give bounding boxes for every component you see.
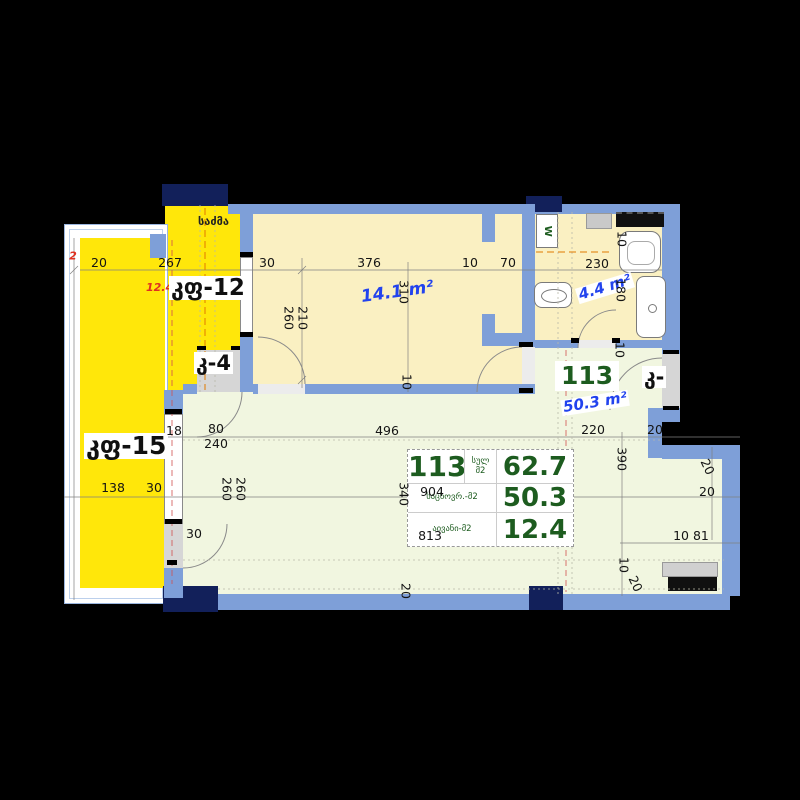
wall-tick <box>231 346 240 350</box>
door-bath-opening <box>578 340 616 348</box>
wall-right-mid <box>648 420 662 458</box>
floor-plan: W <box>0 0 800 800</box>
window-left-main <box>164 414 183 524</box>
column-top-left <box>162 184 228 206</box>
wall-top <box>228 204 680 214</box>
bathtub-drain <box>648 304 657 313</box>
wall-bedroom-bottom <box>305 384 522 394</box>
table-row-total: 113 სულ მ2 62.7 <box>408 450 573 483</box>
wall-balcony-corner <box>150 234 166 258</box>
wall-left-main-b <box>164 568 183 598</box>
wall-tick <box>165 519 182 524</box>
wall-tick <box>663 406 679 410</box>
wall-strip-right-b <box>240 337 253 392</box>
wall-seg-a <box>183 384 197 394</box>
wall-niche-stub-b <box>482 314 495 335</box>
bathtub <box>636 276 666 338</box>
balcony-strip-label: კფ-12 <box>169 276 247 300</box>
toilet <box>619 231 661 273</box>
table-unit-number: 113 <box>408 453 464 481</box>
wall-bath-bottom-b <box>616 340 662 348</box>
shaft <box>586 213 612 229</box>
table-balcony-label: აივანი-მ2 <box>408 525 496 535</box>
table-total-value: 62.7 <box>496 450 573 483</box>
toilet-bowl <box>627 241 655 265</box>
washing-machine: W <box>536 214 558 248</box>
table-row-living: საცხოვრ.-მ2 50.3 <box>408 483 573 512</box>
wall-divider <box>522 204 535 347</box>
wall-tick <box>197 346 206 350</box>
table-living-value: 50.3 <box>496 484 573 512</box>
strip-top-label: საძმა <box>198 216 229 228</box>
wall-tick <box>165 409 182 414</box>
column-bottom-mid <box>529 586 563 610</box>
door-bedroom-left-opening <box>258 384 305 394</box>
door-right-label: კ- <box>642 366 666 388</box>
wall-niche-stub-a <box>482 214 495 242</box>
table-total-label: სულ მ2 <box>464 450 496 483</box>
door-k4-label: კ-4 <box>194 352 233 374</box>
sink-bowl <box>541 289 567 303</box>
table-balcony-value: 12.4 <box>496 513 573 546</box>
table-total-label-line2: მ2 <box>472 467 490 477</box>
table-row-balcony: აივანი-მ2 12.4 <box>408 512 573 546</box>
hall-unit-number: 113 <box>555 361 619 391</box>
wall-tick <box>519 342 533 347</box>
wall-tick <box>167 560 177 565</box>
wall-bottom <box>218 594 730 610</box>
area-summary-table: 113 სულ მ2 62.7 საცხოვრ.-მ2 50.3 აივანი-… <box>407 449 574 547</box>
wall-tick <box>519 388 533 393</box>
washing-machine-label: W <box>541 226 552 237</box>
wall-tick <box>612 338 620 343</box>
wall-tick <box>240 332 253 337</box>
wall-tick <box>240 252 253 257</box>
left-balcony-label: კფ-15 <box>84 433 168 459</box>
vent-duct-top <box>616 212 664 227</box>
wall-tick <box>571 338 579 343</box>
ledge-bottom-right <box>662 562 718 577</box>
wall-far-right <box>722 455 740 596</box>
wall-strip-right-a <box>240 204 253 257</box>
sink <box>534 282 572 308</box>
wall-tick <box>663 350 679 354</box>
vent-duct-bottom <box>668 577 717 591</box>
table-living-label: საცხოვრ.-მ2 <box>408 493 496 503</box>
